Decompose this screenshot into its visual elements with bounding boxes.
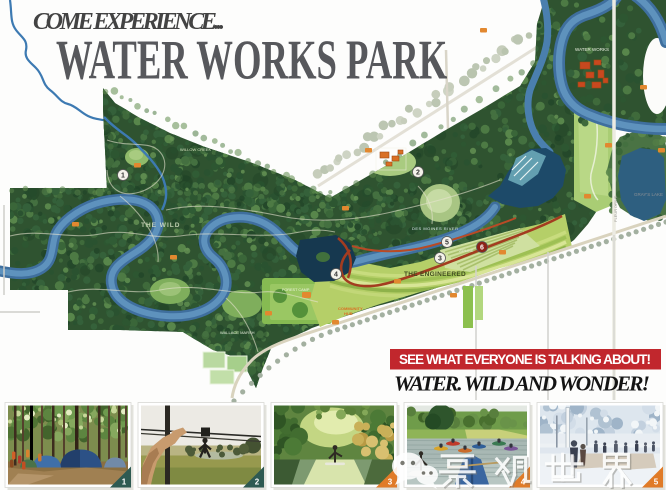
svg-text:6: 6 [480,244,484,251]
svg-text:HUB: HUB [344,311,353,316]
svg-text:FLEUR DRIVE: FLEUR DRIVE [613,195,618,222]
svg-text:5: 5 [654,478,659,487]
svg-text:WATER WORKS PARK: WATER WORKS PARK [56,30,447,92]
svg-text:ZIPLINE: ZIPLINE [459,249,474,253]
svg-text:5: 5 [445,239,449,246]
svg-text:SEE WHAT EVERYONE IS TALKING A: SEE WHAT EVERYONE IS TALKING ABOUT! [399,352,651,367]
svg-text:THE WILD: THE WILD [141,222,180,229]
svg-text:DES MOINES RIVER: DES MOINES RIVER [412,226,458,231]
svg-text:1: 1 [122,478,127,487]
svg-text:WILLOW CREEK: WILLOW CREEK [180,147,211,152]
svg-text:WATER. WILD AND WONDER!: WATER. WILD AND WONDER! [394,372,650,396]
svg-text:3: 3 [388,478,393,487]
svg-text:GRAY'S LAKE: GRAY'S LAKE [634,192,663,197]
svg-text:3: 3 [438,255,442,262]
svg-text:THE ENGINEERED: THE ENGINEERED [404,271,466,278]
svg-text:FOREST CAMP: FOREST CAMP [282,288,310,292]
svg-text:4: 4 [334,271,338,278]
svg-text:1: 1 [121,172,125,179]
svg-text:2: 2 [416,169,420,176]
svg-text:2: 2 [255,478,260,487]
svg-text:WATER WORKS: WATER WORKS [575,47,609,52]
svg-text:WALLACE MARSH: WALLACE MARSH [220,330,255,335]
